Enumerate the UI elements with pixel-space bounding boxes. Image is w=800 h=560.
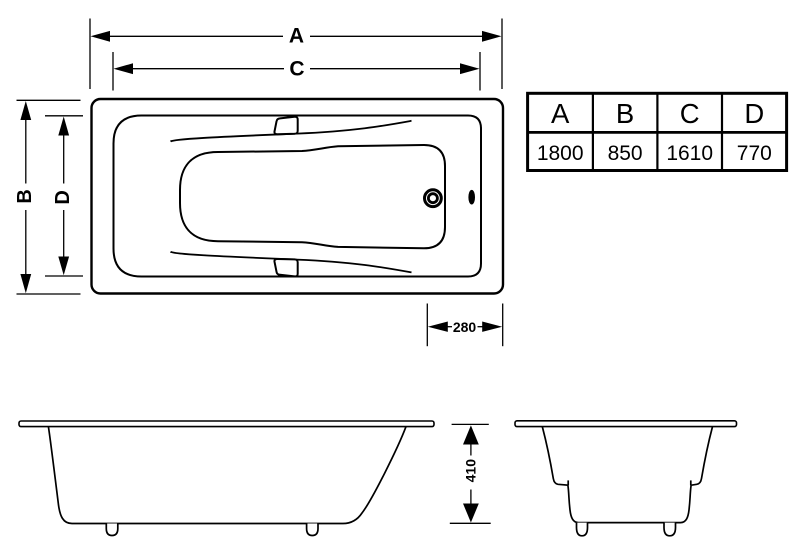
svg-text:850: 850: [608, 142, 643, 165]
svg-text:C: C: [289, 58, 304, 81]
svg-text:A: A: [289, 24, 304, 47]
svg-text:A: A: [551, 98, 570, 129]
svg-text:D: D: [744, 98, 764, 129]
svg-text:C: C: [680, 98, 700, 129]
svg-text:B: B: [14, 189, 36, 203]
svg-text:1610: 1610: [666, 142, 713, 165]
svg-text:280: 280: [453, 319, 477, 335]
svg-text:410: 410: [463, 459, 479, 483]
svg-text:B: B: [616, 98, 634, 129]
svg-text:770: 770: [737, 142, 772, 165]
svg-text:1800: 1800: [537, 142, 584, 165]
svg-text:D: D: [52, 190, 74, 204]
